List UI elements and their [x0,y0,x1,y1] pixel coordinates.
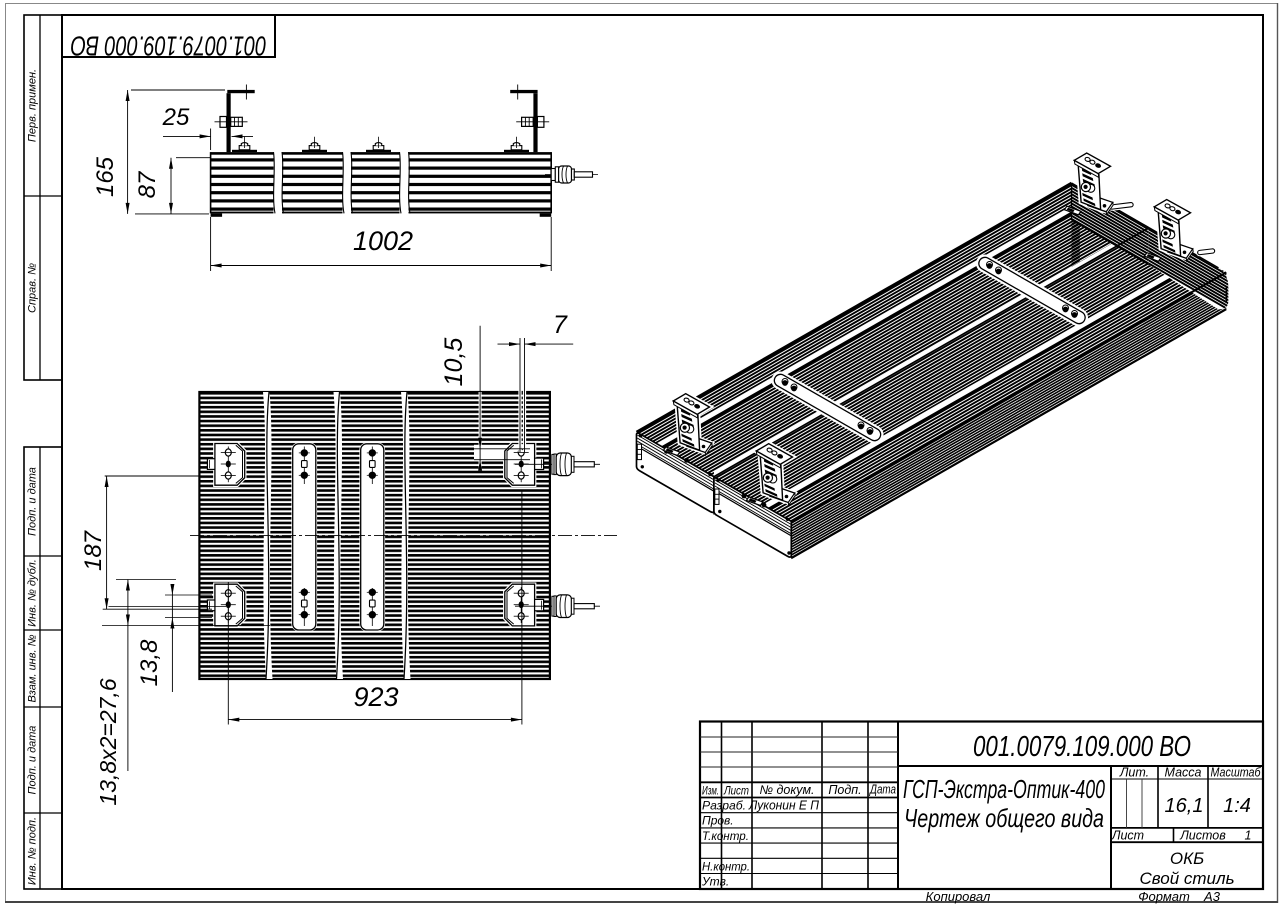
svg-text:Дата: Дата [868,783,896,797]
svg-text:Утв.: Утв. [701,875,729,889]
svg-text:ГСП-Экстра-Оптик-400: ГСП-Экстра-Оптик-400 [903,774,1105,804]
svg-text:Лист: Лист [1111,829,1144,843]
svg-text:001.0079.109.000 ВО: 001.0079.109.000 ВО [71,31,267,62]
svg-text:Перв. примен.: Перв. примен. [27,69,39,142]
svg-text:Н.контр.: Н.контр. [702,859,750,873]
svg-text:Инв. № подп.: Инв. № подп. [27,817,39,885]
svg-text:1002: 1002 [353,226,413,256]
svg-text:187: 187 [80,529,107,571]
svg-text:Изм.: Изм. [702,783,719,797]
svg-text:Подп.: Подп. [828,783,861,797]
svg-text:Формат: Формат [1138,889,1190,904]
svg-text:Т.контр.: Т.контр. [702,829,749,843]
svg-text:Копировал: Копировал [926,889,991,904]
svg-text:10,5: 10,5 [440,338,468,387]
svg-text:7: 7 [553,311,568,339]
svg-text:Подп. и дата: Подп. и дата [27,726,39,795]
svg-text:Разраб.: Разраб. [702,799,746,813]
svg-text:ОКБ: ОКБ [1170,849,1204,868]
svg-text:А3: А3 [1203,889,1221,904]
svg-text:923: 923 [353,682,398,712]
svg-text:165: 165 [92,156,119,197]
svg-text:Луконин Е П: Луконин Е П [748,799,820,813]
svg-text:Пров.: Пров. [702,814,734,828]
svg-text:№ докум.: № докум. [759,783,814,797]
svg-text:16,1: 16,1 [1165,795,1204,817]
svg-text:25: 25 [162,104,190,131]
svg-text:Подп. и дата: Подп. и дата [27,467,39,536]
svg-text:Лист: Лист [723,783,749,797]
svg-text:Взам. инв. №: Взам. инв. № [27,634,39,702]
svg-text:Чертеж общего вида: Чертеж общего вида [904,803,1104,833]
svg-text:1:4: 1:4 [1223,795,1251,817]
svg-text:Инв. № дубл.: Инв. № дубл. [27,559,39,627]
svg-text:Справ. №: Справ. № [27,263,39,313]
svg-text:Масса: Масса [1165,766,1202,780]
svg-text:Свой стиль: Свой стиль [1139,869,1234,888]
svg-text:Лит.: Лит. [1119,766,1149,780]
svg-text:001.0079.109.000 ВО: 001.0079.109.000 ВО [973,731,1191,763]
svg-text:1: 1 [1245,829,1252,843]
svg-text:87: 87 [134,170,161,198]
svg-text:Масштаб: Масштаб [1211,766,1262,780]
svg-text:Листов: Листов [1179,829,1226,843]
svg-text:13,8х2=27,6: 13,8х2=27,6 [95,678,121,805]
svg-text:13,8: 13,8 [136,639,163,686]
